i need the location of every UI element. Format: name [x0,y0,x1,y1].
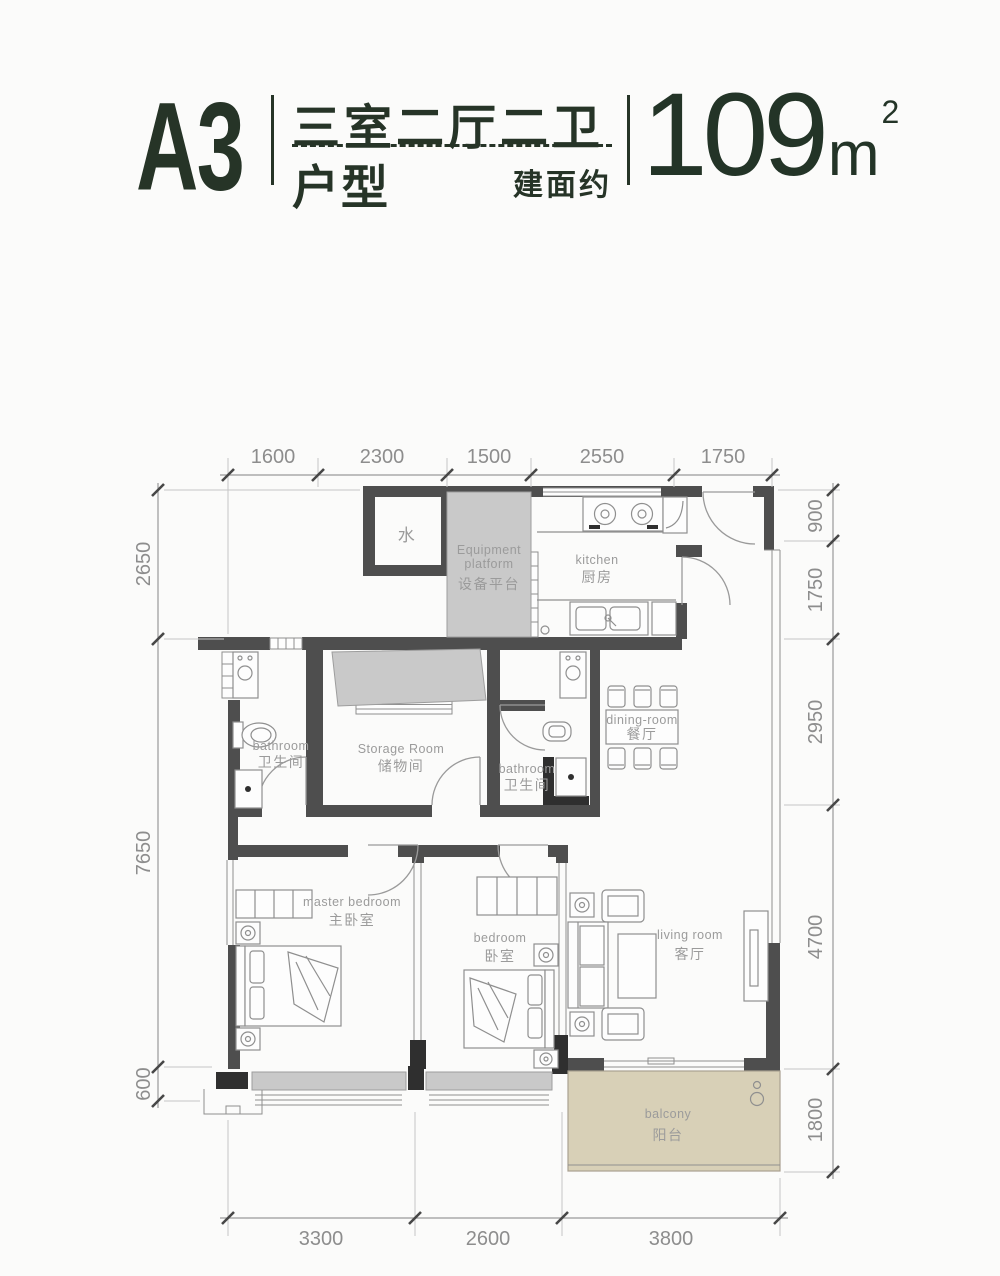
nightstand-lamp-icon [236,922,260,944]
room-label-master-zh: 主卧室 [329,912,376,928]
dining-chair-icon [608,686,677,707]
entry-door [703,492,755,544]
dim-bottom-3: 3800 [649,1228,694,1250]
dining-chair-icon [608,748,677,769]
master-furniture [236,890,341,1050]
stove-icon [583,497,663,531]
tv-cabinet-icon [744,911,768,1001]
wardrobe-icon [477,877,557,915]
sofa-icon [568,922,608,1008]
shower-icon [235,770,262,808]
room-label-dining-zh: 餐厅 [627,726,658,742]
room-label-equipment-en1: Equipment [457,543,521,557]
living-furniture [568,890,768,1040]
dim-top-2: 2300 [360,446,405,468]
kitchen-window [543,488,661,497]
room-label-dining-en: dining-room [606,713,678,727]
room-label-bedroom-zh: 卧室 [485,948,516,964]
bed-icon [464,970,554,1048]
dim-left-2: 7650 [133,831,155,876]
room-label-balcony-zh: 阳台 [653,1127,684,1143]
room-label-equipment-zh: 设备平台 [458,576,520,592]
balcony-area [568,1071,780,1171]
dim-right-5: 1800 [805,1098,827,1143]
dim-right-2: 1750 [805,568,827,613]
toilet-icon [543,722,571,741]
dim-top-1: 1600 [251,446,296,468]
bed-icon [236,946,341,1026]
armchair-icon [602,1008,644,1040]
room-label-kitchen-zh: 厨房 [582,569,613,585]
balcony-door-window [604,1058,744,1067]
dim-right-1: 900 [805,499,827,532]
dimension-right: 900 1750 2950 4700 1800 [778,483,840,1179]
room-label-living-zh: 客厅 [675,946,706,962]
corner-unit-icon [663,497,687,533]
kitchen-door [682,557,730,605]
bay-windows [204,1072,552,1114]
room-label-living-en: living room [657,928,723,942]
dim-top-5: 1750 [701,446,746,468]
dim-bottom-1: 3300 [299,1228,344,1250]
floor-drain-icon [541,626,549,634]
room-label-bathroom-left-en: bathroom [253,739,310,753]
room-label-bathroom-left-zh: 卫生间 [258,754,305,770]
room-label-water: 水 [398,526,417,545]
dim-bottom-2: 2600 [466,1228,511,1250]
room-label-bathroom-right-zh: 卫生间 [504,777,551,793]
room-label-storage-en: Storage Room [358,742,445,756]
shower-icon [556,758,586,796]
floor-plan: 水 Equipment platform 设备平台 kitchen 厨房 bat… [0,0,1000,1276]
washbasin-icon [233,652,258,698]
nightstand-lamp-icon [236,1028,260,1050]
bedroom-furniture [464,877,558,1068]
storage-door [432,757,480,805]
room-label-kitchen-en: kitchen [575,553,618,567]
dim-right-3: 2950 [805,700,827,745]
room-label-bedroom-en: bedroom [474,931,527,945]
side-table-lamp-icon [570,893,594,917]
dim-top-3: 1500 [467,446,512,468]
kitchen-sink-icon [570,602,648,635]
room-label-storage-zh: 储物间 [378,758,425,774]
armchair-icon [602,890,644,922]
washbasin-icon [560,652,586,698]
master-window [227,860,233,945]
coffee-table-icon [618,934,656,998]
floorplan-page: A3 三室二厅二卫 户型 建面约 109m2 [0,0,1000,1276]
room-label-equipment-en2: platform [464,557,513,571]
room-label-balcony-en: balcony [645,1107,692,1121]
dim-top-4: 2550 [580,446,625,468]
wardrobe-icon [236,890,312,918]
bathroom-right-door [500,705,545,750]
nightstand-lamp-icon [534,944,558,966]
kitchen-cabinet-icon [652,602,676,635]
room-label-bathroom-right-en: bathroom [499,762,556,776]
bathroom-left-furniture [233,652,276,808]
dim-left-1: 2650 [133,542,155,587]
side-table-lamp-icon [570,1012,594,1036]
nightstand-lamp-icon [534,1050,558,1068]
dim-right-4: 4700 [805,915,827,960]
room-label-master-en: master bedroom [303,895,401,909]
dim-left-3: 600 [133,1067,155,1100]
storage-shaft [332,649,486,706]
